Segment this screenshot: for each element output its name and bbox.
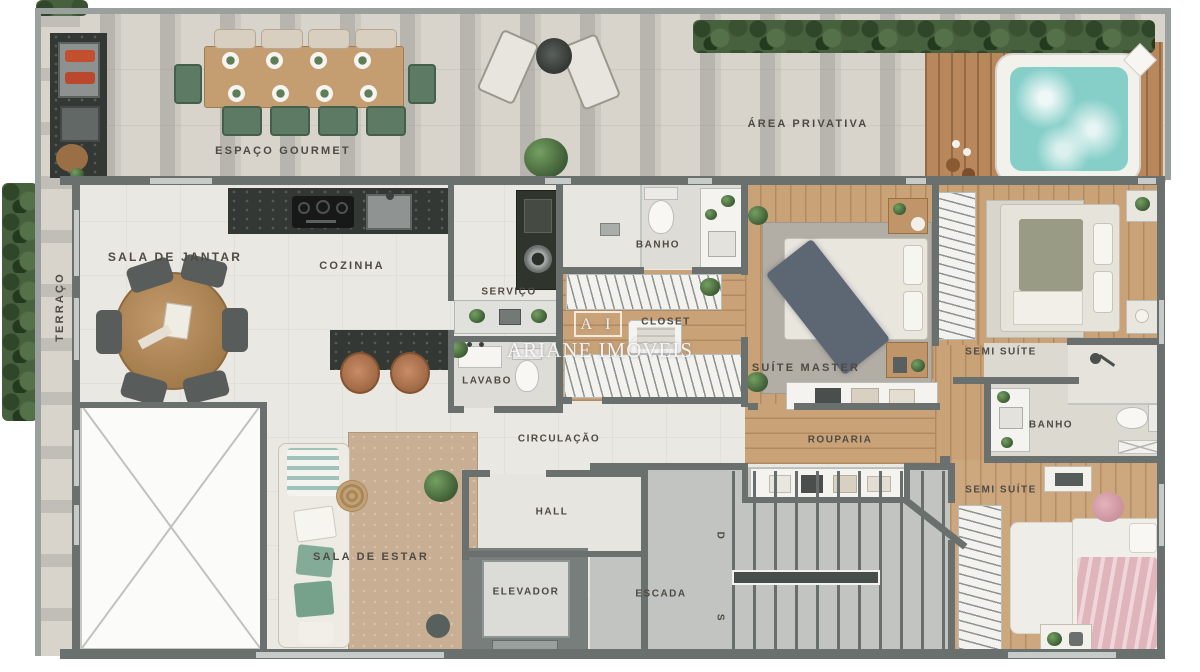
- window: [1159, 484, 1164, 546]
- label-sala-de-jantar: SALA DE JANTAR: [108, 250, 242, 264]
- window: [1159, 300, 1164, 344]
- window: [1138, 178, 1156, 184]
- wall: [494, 406, 560, 413]
- watermark-logo: A I: [574, 311, 622, 337]
- wall: [794, 403, 940, 410]
- label-banho-suite: BANHO: [636, 240, 680, 251]
- wall: [462, 551, 644, 557]
- wall: [948, 540, 955, 655]
- nightstand: [1126, 190, 1158, 222]
- label-espaco-gourmet: ESPAÇO GOURMET: [215, 145, 351, 157]
- window: [74, 210, 79, 276]
- label-banho-semi: BANHO: [1029, 420, 1073, 431]
- label-lavabo: LAVABO: [462, 376, 512, 387]
- label-suite-master: SUÍTE MASTER: [752, 362, 860, 374]
- window: [256, 652, 444, 658]
- wall: [741, 183, 748, 275]
- semi-suite-2-dresser: [1044, 466, 1092, 492]
- suite-plant: [746, 372, 768, 392]
- label-rouparia: ROUPARIA: [808, 435, 873, 446]
- window: [1008, 652, 1116, 658]
- deck-cups: [952, 140, 960, 148]
- label-area-privativa: ÁREA PRIVATIVA: [748, 118, 869, 130]
- wall: [74, 402, 266, 408]
- label-sala-de-estar: SALA DE ESTAR: [313, 551, 429, 563]
- nightstand: [888, 198, 928, 234]
- living-rug: [348, 432, 478, 652]
- semi-suite-2-rack: [958, 505, 1002, 650]
- wall: [748, 403, 758, 410]
- gourmet-chair-green: [222, 106, 262, 136]
- gourmet-chair: [214, 29, 256, 49]
- pouf-pink: [1092, 492, 1124, 522]
- gourmet-chair-green: [366, 106, 406, 136]
- gourmet-chair-green: [408, 64, 436, 104]
- label-elevador: ELEVADOR: [493, 587, 560, 598]
- wall: [260, 402, 267, 652]
- banho-suite-toilet: [644, 187, 678, 235]
- wall: [448, 183, 454, 301]
- wall: [940, 456, 950, 463]
- semi-suite-2-desk: [1040, 624, 1092, 652]
- closet-plant: [700, 278, 720, 296]
- label-semi-suite-2: SEMI SUÍTE: [965, 485, 1037, 496]
- deck-drinks: [946, 158, 960, 172]
- wall: [984, 456, 1165, 463]
- deck-cups: [963, 148, 971, 156]
- laundry-tall-unit: [516, 190, 558, 290]
- wall: [1157, 176, 1165, 659]
- gourmet-chair: [308, 29, 350, 49]
- wall: [60, 649, 1165, 659]
- plate: [354, 52, 371, 69]
- stair-handrail: [732, 570, 880, 585]
- bbq-grill: [58, 42, 100, 98]
- gourmet-chair-green: [318, 106, 358, 136]
- hedge-left: [2, 183, 38, 421]
- wall: [562, 267, 644, 274]
- cooktop: [292, 196, 354, 228]
- wall: [641, 470, 648, 656]
- window: [150, 178, 212, 184]
- wall: [932, 183, 939, 346]
- suite-master-bed: [784, 238, 928, 340]
- nightstand: [1126, 300, 1158, 334]
- wall: [742, 497, 910, 503]
- jacuzzi-water: [1010, 67, 1128, 171]
- kitchen-sink: [366, 194, 412, 230]
- lounge-side-table: [536, 38, 572, 74]
- label-terraco: TERRAÇO: [54, 272, 66, 342]
- parapet-top: [35, 8, 1171, 14]
- wall: [448, 338, 454, 412]
- bath-mat-2: [1118, 440, 1162, 454]
- shower-area: [562, 185, 642, 267]
- watermark-name: ARIANE IMÓVEIS: [500, 338, 700, 363]
- window: [74, 430, 79, 486]
- window: [906, 178, 926, 184]
- dining-chair: [96, 310, 122, 354]
- window: [74, 505, 79, 545]
- banho-semi-toilet: [1114, 404, 1160, 432]
- plate: [316, 85, 333, 102]
- stair-down-marker: D: [715, 532, 726, 541]
- shower-area-2: [1068, 343, 1160, 405]
- wall: [948, 463, 955, 503]
- label-circulacao: CIRCULAÇÃO: [518, 434, 600, 445]
- lounge-plant: [524, 138, 568, 178]
- plate: [310, 52, 327, 69]
- wall: [448, 406, 464, 413]
- wall: [1067, 338, 1165, 345]
- wall: [562, 397, 572, 404]
- gourmet-chair: [355, 29, 397, 49]
- wall: [692, 267, 747, 274]
- void-area: [80, 404, 262, 650]
- wall: [60, 176, 1165, 185]
- label-semi-suite-1: SEMI SUÍTE: [965, 347, 1037, 358]
- banho-suite-vanity: [700, 188, 742, 268]
- wall: [546, 470, 648, 477]
- wall: [462, 470, 469, 560]
- elevator-cab: [482, 560, 570, 638]
- suite-plant: [748, 206, 768, 225]
- living-side-table: [426, 614, 450, 638]
- banho-semi-vanity: [990, 388, 1030, 452]
- floor-plan: ESPAÇO GOURMET ÁREA PRIVATIVA TERRAÇO SA…: [0, 0, 1200, 672]
- gourmet-chair-green: [270, 106, 310, 136]
- window: [74, 298, 79, 360]
- jacuzzi: [995, 53, 1141, 183]
- gourmet-chair-green: [174, 64, 202, 104]
- corridor-wood-patch: [935, 345, 985, 463]
- bbq-side-table: [56, 144, 88, 172]
- hedge-top: [693, 20, 1155, 53]
- elevator-shaft: [462, 548, 588, 654]
- window: [545, 178, 571, 184]
- wall: [602, 397, 748, 404]
- plate: [228, 85, 245, 102]
- plate: [360, 85, 377, 102]
- label-servico: SERVIÇO: [481, 287, 536, 298]
- sofa: [278, 443, 350, 648]
- wall: [590, 463, 746, 470]
- nightstand: [886, 342, 928, 378]
- wall: [556, 183, 563, 413]
- living-plant: [424, 470, 458, 502]
- wall: [462, 470, 490, 477]
- servico-counter: [454, 300, 558, 334]
- island-stool: [390, 352, 430, 394]
- island-stool: [340, 352, 380, 394]
- semi-suite-1-bed: [1000, 204, 1120, 332]
- label-hall: HALL: [536, 507, 569, 518]
- bbq-sink: [60, 106, 100, 142]
- label-cozinha: COZINHA: [319, 260, 385, 272]
- plate: [272, 85, 289, 102]
- parapet-right: [1165, 8, 1171, 180]
- wall: [953, 377, 1079, 384]
- label-closet: CLOSET: [641, 317, 691, 328]
- plate: [222, 52, 239, 69]
- closet-rack-top: [566, 274, 722, 310]
- wall: [984, 384, 991, 460]
- dining-chair: [222, 308, 248, 352]
- walkin-rack: [938, 192, 976, 340]
- jute-ottoman: [336, 480, 368, 512]
- stair-up-marker: S: [715, 614, 726, 622]
- window: [688, 178, 712, 184]
- parapet-left: [35, 8, 41, 656]
- plate: [266, 52, 283, 69]
- gourmet-chair: [261, 29, 303, 49]
- label-escada: ESCADA: [635, 589, 686, 600]
